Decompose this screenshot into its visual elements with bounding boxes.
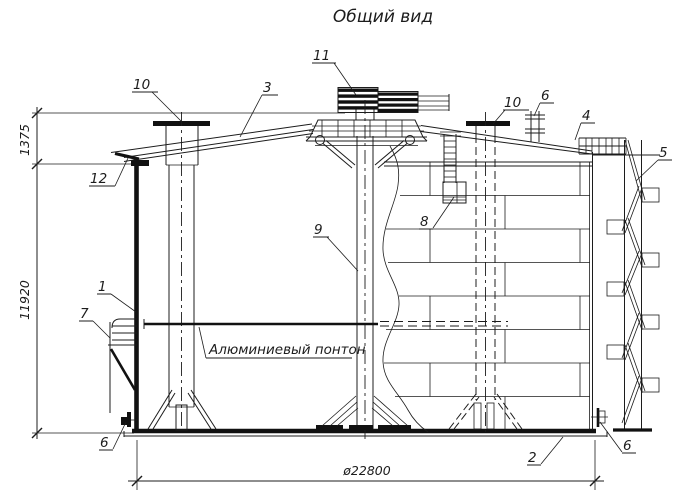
- break-line: [383, 146, 428, 432]
- callout-3: 3: [263, 80, 272, 96]
- roof-vent-assembly: [338, 88, 449, 113]
- tank-general-view-drawing: Общий вид 1375 11920 ø22800: [0, 0, 700, 500]
- dim-roof-rise: 1375: [17, 124, 32, 156]
- roof-railing: [579, 138, 660, 155]
- callout-12: 12: [90, 171, 107, 187]
- callout-7: 7: [80, 306, 89, 322]
- shell-plate-courses: [384, 162, 590, 430]
- callout-11: 11: [313, 48, 330, 64]
- external-staircase: [607, 140, 659, 430]
- callout-4: 4: [582, 108, 591, 124]
- pontoon-label: Алюминиевый понтон: [208, 342, 366, 358]
- tank-shell: [124, 146, 607, 437]
- callout-1: 1: [98, 279, 107, 295]
- callout-8: 8: [420, 214, 429, 230]
- left-guide-column: [148, 112, 216, 430]
- callout-10-right: 10: [504, 95, 521, 111]
- roof: [111, 108, 592, 168]
- left-curb-angle: [131, 160, 149, 166]
- dim-diameter: ø22800: [342, 463, 390, 478]
- callout-6-shell-left: 6: [100, 435, 109, 451]
- right-hidden-column: [449, 112, 522, 432]
- callouts: 10 3 11 10 6 4 5 12 1 7 9 8 6 2 6: [79, 48, 672, 466]
- callout-5: 5: [659, 145, 668, 161]
- callout-10-left: 10: [133, 77, 150, 93]
- drawing-title: Общий вид: [333, 7, 433, 27]
- pontoon: Алюминиевый понтон: [144, 319, 508, 358]
- centre-column: [316, 100, 411, 442]
- callout-6-shell-right: 6: [623, 438, 632, 454]
- callout-2: 2: [528, 450, 537, 466]
- shell-nozzle-right: [591, 408, 608, 427]
- side-platform: [108, 319, 137, 413]
- shaft-ladder: [440, 132, 466, 203]
- callout-9: 9: [314, 222, 323, 238]
- callout-6-roof: 6: [541, 88, 550, 104]
- roof-vent-nozzle: [525, 111, 545, 142]
- dim-shell-height: 11920: [17, 280, 32, 320]
